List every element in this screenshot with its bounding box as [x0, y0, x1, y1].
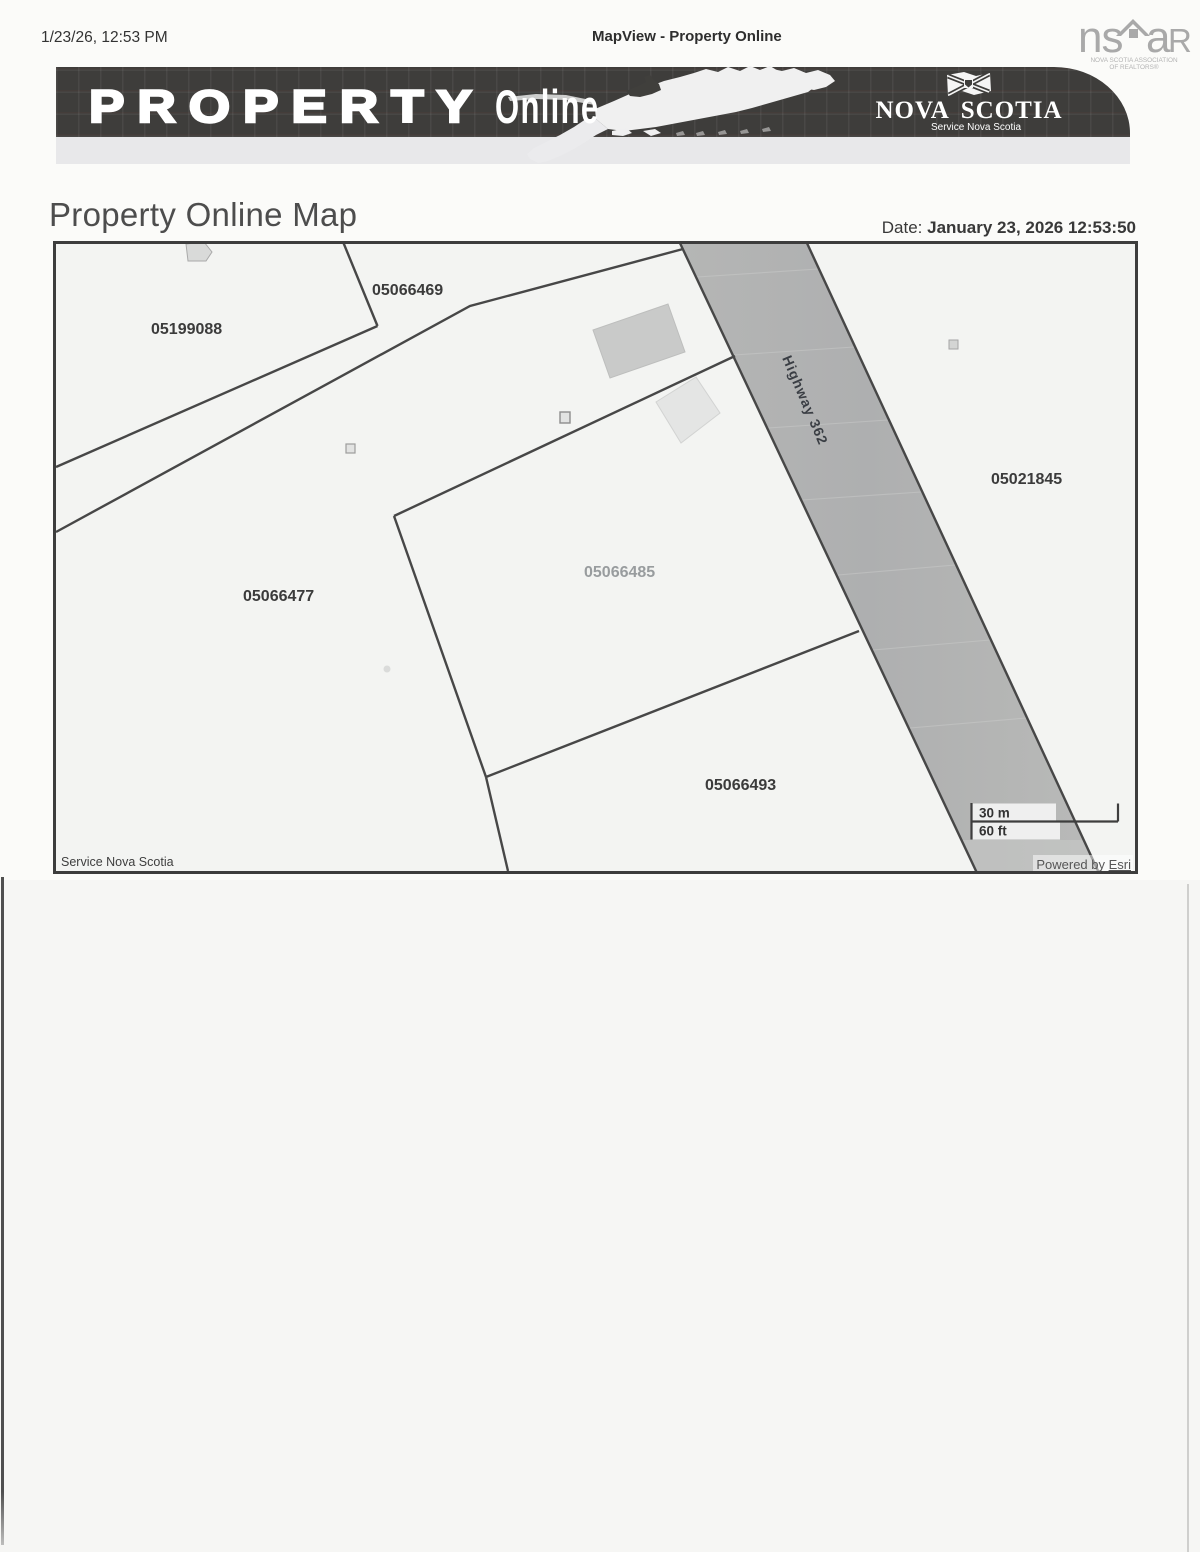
svg-text:05199088: 05199088	[151, 321, 222, 338]
svg-text:Powered by Esri: Powered by Esri	[1036, 857, 1131, 872]
svg-text:NOVA SCOTIA ASSOCIATION: NOVA SCOTIA ASSOCIATION	[1090, 57, 1178, 64]
svg-text:05021845: 05021845	[991, 471, 1062, 488]
svg-text:R: R	[1168, 22, 1192, 59]
svg-text:05066477: 05066477	[243, 588, 314, 605]
svg-text:05066493: 05066493	[705, 777, 776, 794]
svg-text:Service Nova Scotia: Service Nova Scotia	[61, 855, 174, 869]
svg-text:05066469: 05066469	[372, 282, 443, 299]
svg-text:05066485: 05066485	[584, 564, 655, 581]
svg-text:ns: ns	[1078, 13, 1122, 62]
svg-text:60 ft: 60 ft	[979, 824, 1007, 839]
svg-text:30 m: 30 m	[979, 806, 1010, 821]
